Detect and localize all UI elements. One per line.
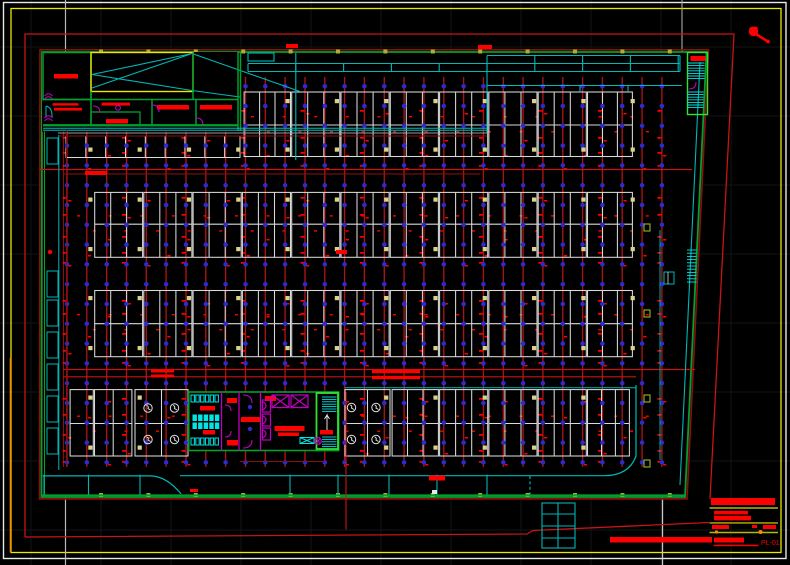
svg-text:PL-01: PL-01 [761, 540, 780, 547]
